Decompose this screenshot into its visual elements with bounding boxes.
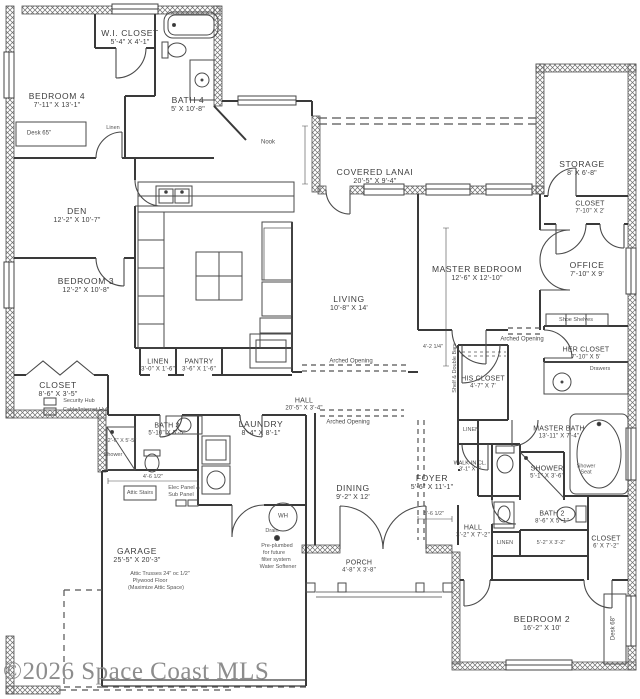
room-label-bath4: BATH 4 5' X 10'-8" [171, 96, 205, 114]
room-label-foyer: FOYER 5'-6" X 11'-1" [411, 474, 454, 492]
dim-4-6: 4'-6 1/2" [143, 474, 163, 480]
room-label-living: LIVING 10'-8" X 14' [330, 295, 368, 313]
room-label-wi-closet: W.I. CLOSET 5'-4" X 4'-1" [101, 29, 159, 47]
preplumbed-label-2: for future [263, 550, 285, 556]
preplumbed-label-4: Water Softener [260, 564, 297, 570]
watermark: ©2026 Space Coast MLS [3, 658, 269, 686]
room-label-bedroom4: BEDROOM 4 7'-11" X 13'-1" [29, 92, 85, 110]
dim-4-2: 4'-2 1/4" [423, 344, 443, 350]
room-label-hall-e: HALL 3'-2" X 7'-2" [456, 525, 490, 540]
drawers-label: Drawers [590, 366, 610, 372]
arched-opening-living: Arched Opening [329, 359, 372, 366]
linen-his-label: LINEN [463, 427, 479, 433]
room-label-porch: PORCH 4'-8" X 3'-8" [342, 560, 376, 575]
desk68-label: Desk 68" [611, 616, 618, 640]
room-label-closet-w: CLOSET 8'-6" X 3'-5" [38, 381, 77, 399]
dim-b3-shower: 2'-6" X 5'-5" [108, 438, 137, 444]
wh-label: WH [278, 514, 288, 521]
shower-seat-label: Shower Seat [573, 465, 599, 476]
floor-plan: W.I. CLOSET 5'-4" X 4'-1" BEDROOM 4 7'-1… [0, 0, 640, 699]
attic-note-2: Plywood Floor [133, 578, 168, 584]
walls-exterior [6, 6, 636, 694]
preplumbed-label-1: Pre-plumbed [261, 543, 293, 549]
security-hub-label: Security Hub [63, 398, 95, 404]
room-label-garage: GARAGE 25'-5" X 20'-3" [113, 547, 160, 565]
room-label-storage: STORAGE 8' X 6'-8" [559, 160, 605, 178]
room-label-walkin-cl: WALK-IN CL. 3'-1" X 7' [454, 461, 487, 474]
floorplan-svg [0, 0, 640, 699]
room-label-master-bedroom: MASTER BEDROOM 12'-6" X 12'-10" [432, 265, 522, 283]
room-label-office: OFFICE 7'-10" X 9' [570, 261, 605, 279]
room-label-closet-ne: CLOSET 7'-10" X 2' [575, 201, 604, 216]
desk65-label: Desk 65" [27, 131, 51, 138]
room-label-shower-m: SHOWER 5'-1" X 3'-6" [530, 466, 564, 481]
room-label-closet-se: CLOSET 6' X 7'-2" [591, 536, 620, 551]
room-label-bedroom3: BEDROOM 3 12'-2" X 10'-8" [58, 277, 114, 295]
arched-opening-master: Arched Opening [500, 337, 543, 344]
arched-opening-dining: Arched Opening [326, 420, 369, 427]
attic-note-1: Attic Trusses 24" oc 1/2" [130, 571, 190, 577]
room-label-laundry: LAUNDRY 8'-4" X 8'-1" [239, 420, 284, 438]
drain-label: Drain [265, 528, 278, 534]
shelf-bars-label: Shelf & Double Bars [452, 343, 458, 393]
linen-b4-label: Linen [106, 125, 119, 131]
cable-hub-label: Cable/Internet Hub [63, 407, 109, 413]
room-label-bath2: BATH 2 8'-6" X 5'-1" [535, 511, 569, 526]
dim-5-6: 5'-6 1/2" [424, 511, 444, 517]
room-label-master-bath: MASTER BATH 13'-11" X 7'-4" [533, 426, 584, 441]
preplumbed-label-3: filter system [261, 557, 290, 563]
attic-note-3: (Maximize Attic Space) [128, 585, 184, 591]
room-label-hall-c: HALL 20'-5" X 3'-4" [285, 398, 322, 413]
room-label-den: DEN 12'-2" X 10'-7" [53, 207, 100, 225]
linen-hall-label: LINEN [497, 540, 513, 546]
nook-label: Nook [261, 140, 275, 147]
shower-b3-label: Shower [104, 452, 123, 458]
shoe-shelves-label: Shoe Shelves [559, 317, 593, 323]
room-label-his-closet: HIS CLOSET 4'-7" X 7' [461, 376, 505, 391]
elec-panel-label-2: Sub Panel [168, 492, 193, 498]
dim-bath2: 5'-2" X 3'-2" [537, 540, 566, 546]
room-label-bedroom2: BEDROOM 2 16'-2" X 10' [514, 615, 570, 633]
elec-panel-label-1: Elec Panel & [168, 485, 200, 491]
room-label-dining: DINING 9'-2" X 12' [336, 484, 370, 502]
room-label-linen-c: LINEN 3'-0" X 1'-6" [141, 359, 175, 374]
room-label-bath3: BATH 3 5'-10" X 5'-5" [148, 423, 185, 438]
room-label-her-closet: HER CLOSET 7'-10" X 5' [563, 347, 610, 362]
room-label-covered-lanai: COVERED LANAI 20'-5" X 9'-4" [337, 168, 414, 186]
room-label-pantry: PANTRY 3'-6" X 1'-6" [182, 359, 216, 374]
attic-stairs-label: Attic Stairs [127, 490, 153, 496]
